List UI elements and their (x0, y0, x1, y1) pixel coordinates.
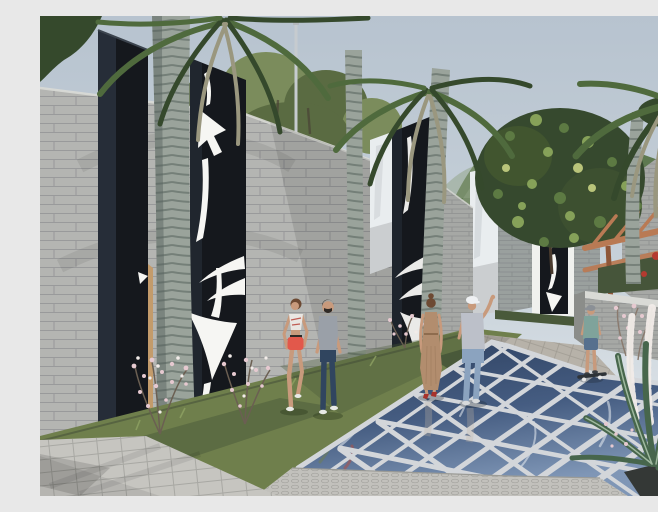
shadow (280, 409, 308, 416)
shadow (313, 412, 343, 420)
shadow (418, 395, 444, 402)
architectural-rendering: Architectural rendering of a landscaped … (40, 16, 658, 496)
scene-canvas (40, 16, 658, 496)
